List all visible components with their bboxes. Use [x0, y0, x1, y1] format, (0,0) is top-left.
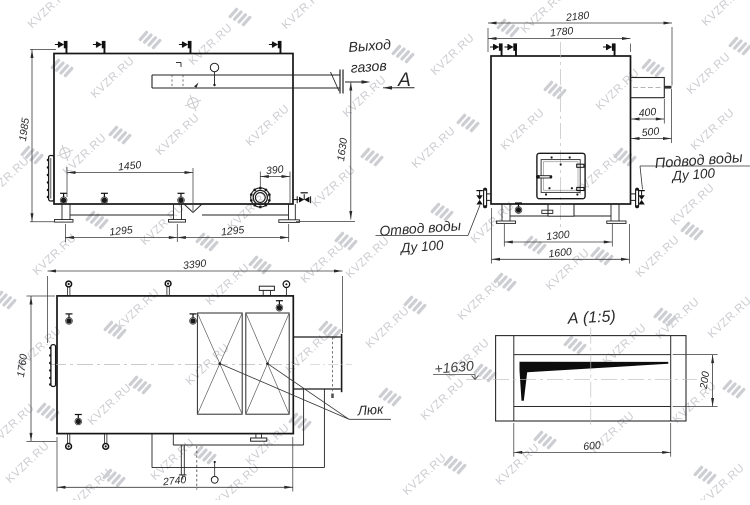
svg-text:400: 400 — [638, 106, 657, 120]
svg-text:газов: газов — [350, 58, 387, 76]
svg-text:1450: 1450 — [117, 159, 142, 173]
svg-text:2180: 2180 — [564, 10, 590, 24]
svg-text:1295: 1295 — [220, 224, 245, 238]
svg-text:600: 600 — [583, 439, 602, 453]
svg-text:Ду 100: Ду 100 — [670, 166, 716, 184]
svg-text:Ду 100: Ду 100 — [398, 238, 444, 256]
svg-text:А (1:5): А (1:5) — [566, 308, 616, 328]
svg-text:Люк: Люк — [356, 402, 384, 419]
svg-text:200: 200 — [698, 370, 712, 390]
svg-text:1600: 1600 — [548, 246, 573, 260]
svg-text:1300: 1300 — [546, 229, 571, 243]
svg-text:1295: 1295 — [109, 224, 134, 238]
svg-text:500: 500 — [641, 125, 660, 139]
svg-text:390: 390 — [265, 163, 284, 177]
svg-text:2740: 2740 — [161, 474, 187, 488]
svg-text:Выход: Выход — [348, 37, 392, 56]
svg-text:1780: 1780 — [549, 25, 574, 39]
svg-text:3390: 3390 — [182, 258, 207, 272]
